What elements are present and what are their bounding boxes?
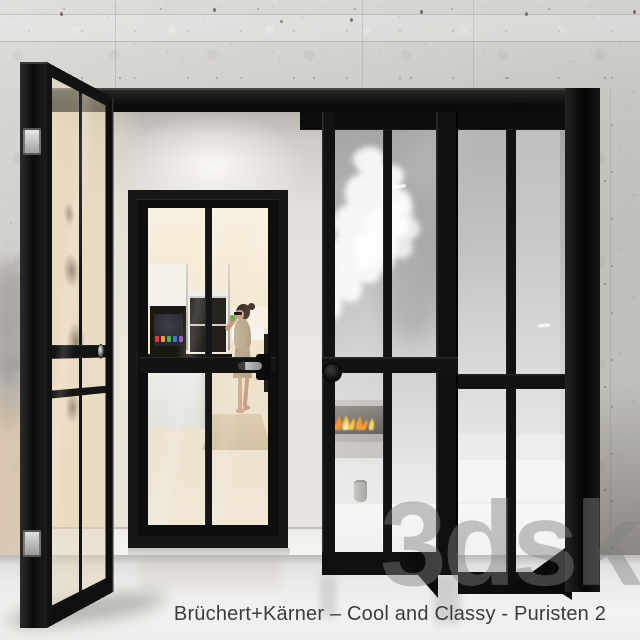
open-door-leaf [47, 62, 113, 628]
tie-hole [525, 12, 528, 16]
concrete-seam-band [0, 14, 640, 42]
tie-hole [350, 18, 353, 22]
tie-hole [633, 10, 636, 14]
watermark: 3dsky [380, 484, 640, 604]
door-hinge [23, 530, 41, 557]
open-door-glass-sheen [52, 78, 106, 606]
sliding-door-round-handle [323, 363, 342, 382]
concrete-vertical-seam [473, 0, 474, 88]
sliding-panel-front-left-stile [322, 112, 335, 575]
tie-hole [420, 10, 423, 14]
sliding-panel-back-mid-rail [458, 374, 565, 389]
caption: Brüchert+Kärner – Cool and Classy - Puri… [174, 603, 606, 626]
sliding-panel-front-mid-rail [322, 357, 458, 373]
product-render-stage: 3dsky Brüchert+Kärner – Cool and Classy … [0, 0, 640, 640]
concrete-vertical-seam [362, 0, 363, 88]
tie-hole [280, 20, 283, 23]
tie-hole [60, 12, 63, 16]
open-door-edge-highlight [112, 97, 113, 592]
door-lever-handle [238, 362, 262, 370]
sliding-roller [512, 103, 528, 113]
door-hinge [23, 128, 41, 155]
concrete-vertical-seam [115, 0, 116, 88]
floor-reflection-warm [140, 558, 280, 588]
open-door-leaf-frame [47, 62, 113, 628]
single-glass-door [128, 190, 288, 548]
tie-hole [213, 8, 216, 12]
